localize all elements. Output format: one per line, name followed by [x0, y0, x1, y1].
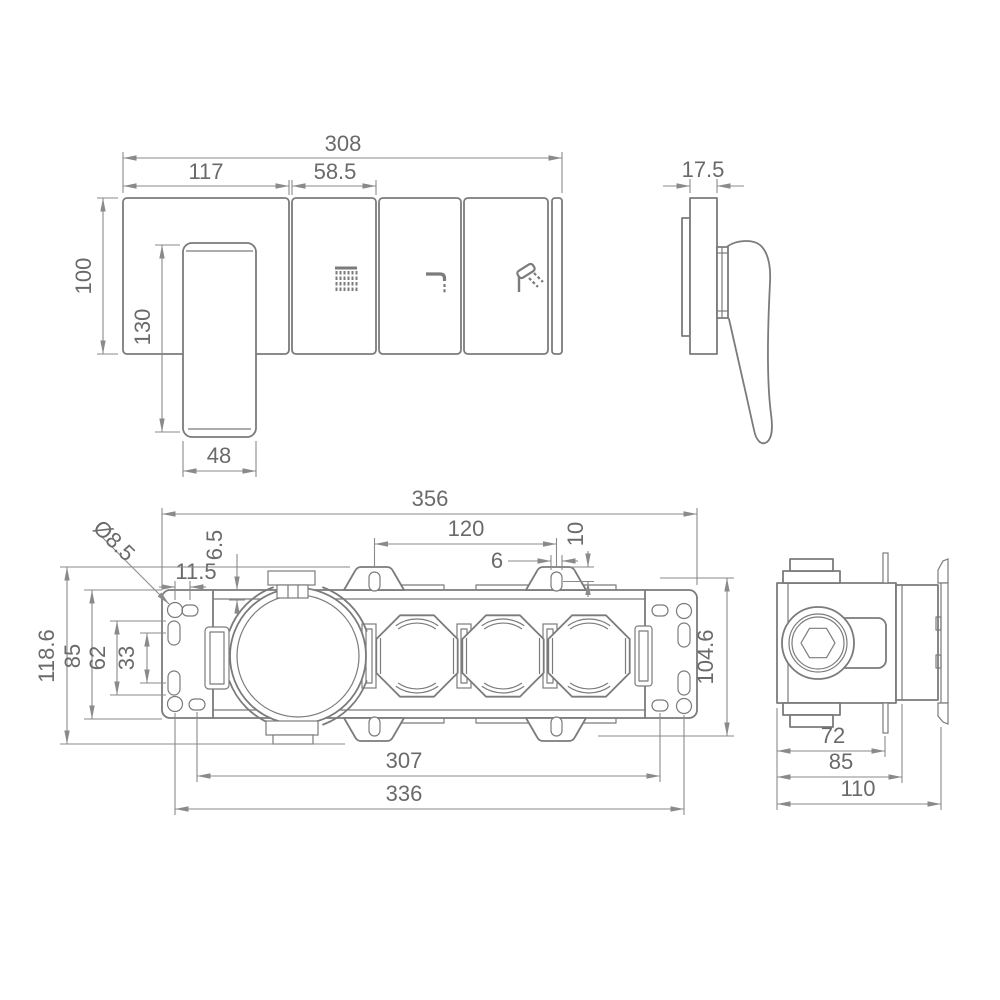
side-plate — [690, 198, 717, 354]
rough-in-box-body — [777, 553, 896, 733]
dim-handle-length: 130 — [130, 309, 155, 346]
hand-shower-icon — [516, 263, 543, 292]
handle-side-profile — [717, 241, 772, 443]
dim-overall-depth: 110 — [840, 776, 875, 801]
dim-handle-width: 48 — [207, 443, 231, 468]
trim-side-view: 17.5 — [663, 157, 772, 443]
dim-tab-hole-height: 10 — [563, 522, 588, 546]
dim-slot-outer-span: 62 — [85, 646, 110, 670]
wall-box-extension — [896, 559, 948, 724]
drawing-svg: 308 117 58.5 100 130 48 — [0, 0, 1000, 1000]
technical-drawing-page: 308 117 58.5 100 130 48 — [0, 0, 1000, 1000]
dim-tab-hole-vertical-spacing: 104.6 — [693, 629, 718, 684]
spout-icon — [426, 274, 445, 293]
trim-front-dimensions: 308 117 58.5 100 130 48 — [71, 131, 562, 477]
dim-slot-center-span: 307 — [386, 748, 423, 773]
dim-rail-flange-height: 6.5 — [202, 530, 227, 561]
dim-hole-center-span: 336 — [386, 781, 423, 806]
dim-button-plate-width: 58.5 — [314, 159, 357, 184]
dim-rough-overall-height: 118.6 — [34, 629, 59, 682]
dim-plate-thickness: 17.5 — [682, 157, 725, 182]
dim-box-depth: 85 — [829, 749, 853, 774]
dim-tab-hole-spacing: 120 — [448, 516, 485, 541]
wall-flange — [682, 218, 690, 336]
rain-shower-icon — [335, 268, 357, 291]
trim-side-dimensions: 17.5 — [663, 157, 744, 193]
dim-overall-width: 308 — [325, 131, 362, 156]
dim-bracket-height: 85 — [60, 644, 85, 668]
dim-body-depth: 72 — [821, 723, 845, 748]
trim-front-view: 308 117 58.5 100 130 48 — [71, 131, 562, 477]
dim-mounting-hole-diameter: Ø8.5 — [88, 515, 140, 566]
rough-in-front-view: 356 120 6 10 6.5 — [34, 486, 734, 815]
rough-in-side-view: 72 85 110 — [777, 553, 948, 810]
valve-ports — [376, 615, 629, 696]
dim-bracket-hole-offset: 11.5 — [175, 559, 216, 584]
dim-rough-overall-width: 356 — [412, 486, 449, 511]
mixer-handle — [183, 243, 256, 437]
dim-plate-height: 100 — [71, 258, 96, 295]
dim-slot-center-spacing: 33 — [114, 646, 139, 670]
dim-tab-hole-width: 6 — [491, 548, 503, 573]
dim-left-plate-width: 117 — [188, 159, 223, 184]
